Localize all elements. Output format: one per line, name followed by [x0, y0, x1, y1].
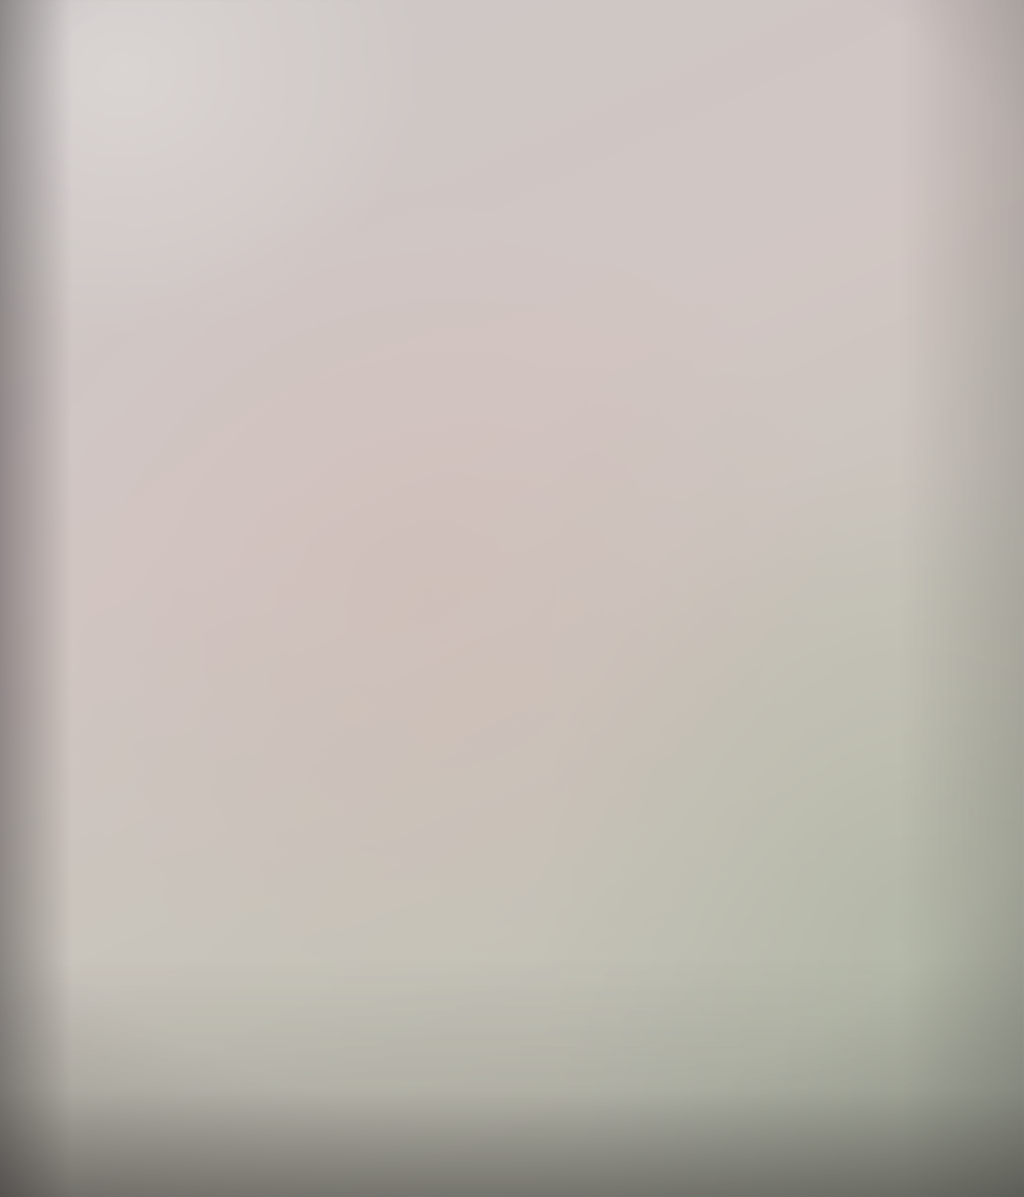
floorplan-photo-page: { "watermark": { "icon": "swan-swirl-ico… [0, 0, 1024, 1197]
scanned-floorplan-photo: 15 114.82 12 104.13 16 121.42 126.08 11 … [0, 0, 1024, 1197]
floorplan-drawing: 15 114.82 12 104.13 16 121.42 126.08 11 … [0, 0, 1024, 1197]
photo-grain [0, 0, 1024, 1197]
